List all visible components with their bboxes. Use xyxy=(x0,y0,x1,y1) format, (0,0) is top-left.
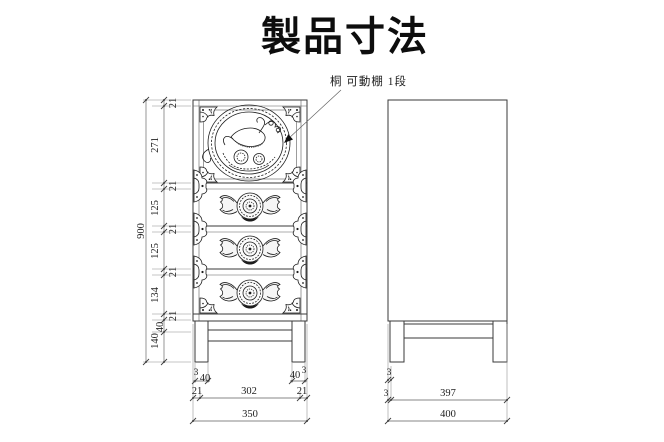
dim-rail-3: 21 xyxy=(168,224,179,235)
edge-bracket xyxy=(293,256,306,288)
corner-bracket xyxy=(283,298,300,313)
dim-inner-width: 302 xyxy=(241,386,257,397)
side-body xyxy=(388,100,507,321)
corner-bracket xyxy=(283,107,300,122)
corner-bracket xyxy=(200,298,217,313)
dimensions-front-left: 900 21 271 21 125 21 125 21 134 21 40 14… xyxy=(136,97,191,365)
dim-total-width: 350 xyxy=(242,409,258,420)
drawing-page: 製品寸法 桐 可動棚 1段 xyxy=(0,0,664,442)
side-view xyxy=(388,100,507,362)
drawer-hardware xyxy=(220,193,280,222)
dim-rail-4: 21 xyxy=(168,267,179,278)
dim-leg-width-left: 40 xyxy=(200,373,211,384)
edge-bracket xyxy=(194,213,207,245)
edge-bracket xyxy=(194,256,207,288)
dim-total-height: 900 xyxy=(136,223,147,239)
dim-post-right: 21 xyxy=(297,386,308,397)
dim-legs-height: 140 xyxy=(150,333,161,349)
dim-leg-width-right: 40 xyxy=(290,370,301,381)
technical-drawing: 900 21 271 21 125 21 125 21 134 21 40 14… xyxy=(0,0,664,442)
dim-stretcher: 40 xyxy=(155,322,166,333)
corner-bracket xyxy=(200,107,217,122)
edge-bracket xyxy=(293,213,306,245)
front-legs xyxy=(195,321,305,362)
dim-rail-5: 21 xyxy=(168,311,179,322)
dim-top-rail: 21 xyxy=(168,98,179,109)
drawer-hardware xyxy=(220,280,280,309)
dim-side-leg-offset: 3 xyxy=(387,368,392,378)
dim-top-compartment: 271 xyxy=(150,137,161,153)
dim-drawer-3: 125 xyxy=(150,243,161,259)
dim-side-total-depth: 400 xyxy=(440,409,456,420)
dim-leg-offset-right: 3 xyxy=(302,366,307,376)
dimensions-side-bottom: 3 3 397 400 xyxy=(384,324,510,424)
dim-post-left: 21 xyxy=(192,386,203,397)
side-legs xyxy=(390,321,507,362)
dim-rail-2: 21 xyxy=(168,181,179,192)
dim-drawer-2: 125 xyxy=(150,200,161,216)
drawer-hardware xyxy=(220,236,280,265)
medallion-ornament xyxy=(203,105,290,181)
dim-side-offset: 3 xyxy=(384,389,389,399)
dim-leg-offset-left: 3 xyxy=(194,368,199,378)
dim-drawer-4: 134 xyxy=(150,286,161,303)
dim-side-inner-depth: 397 xyxy=(440,388,456,399)
